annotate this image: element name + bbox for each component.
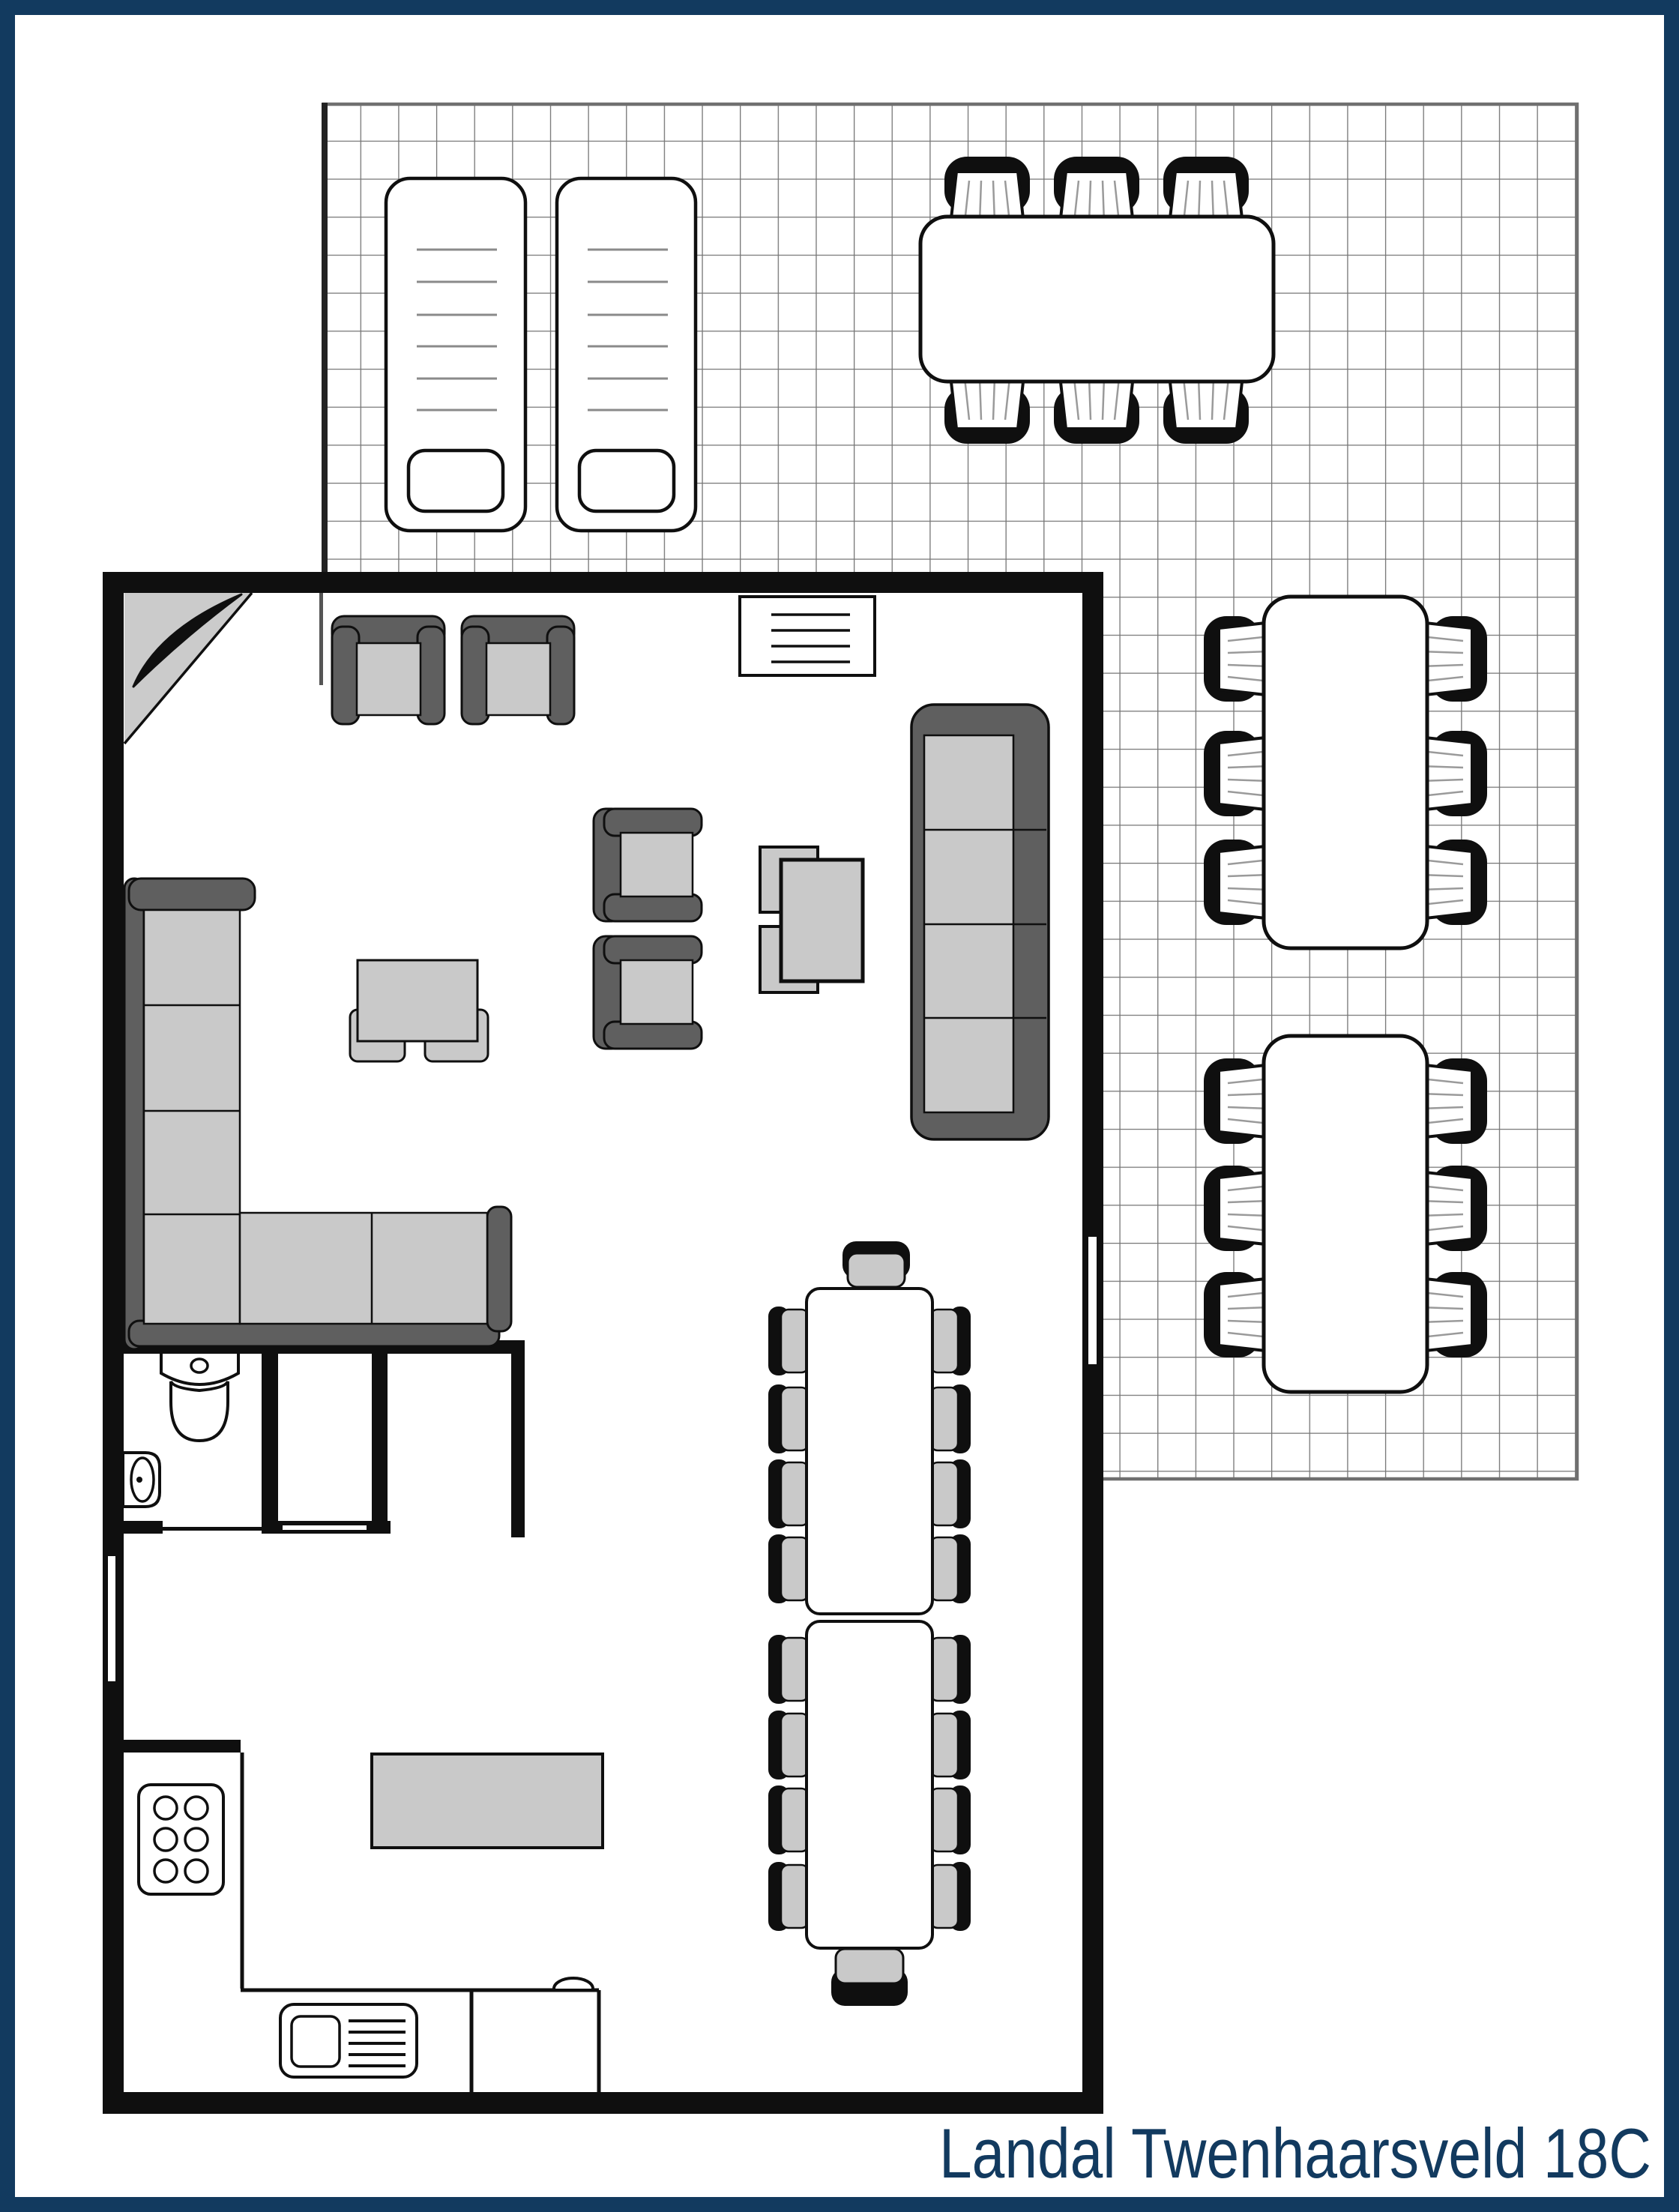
svg-text:Landal Twenhaarsveld 18C: Landal Twenhaarsveld 18C — [939, 2114, 1651, 2193]
